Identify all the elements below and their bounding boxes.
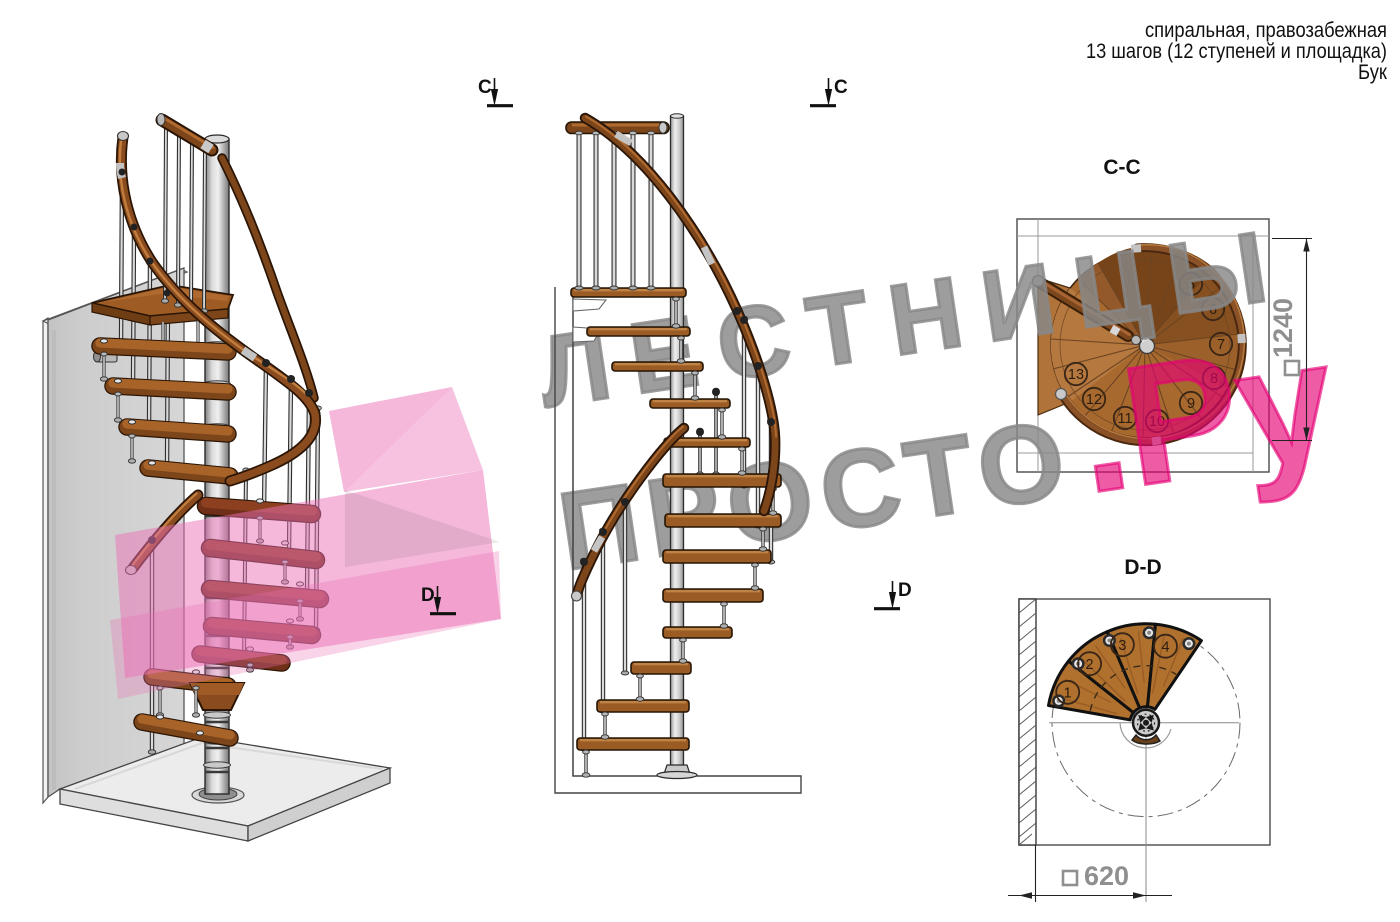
svg-text:C: C [478, 77, 492, 98]
svg-text:D: D [421, 585, 435, 606]
svg-text:620: 620 [1084, 861, 1129, 891]
svg-text:D: D [898, 580, 912, 601]
svg-text:1: 1 [1064, 686, 1072, 702]
svg-text:Бук: Бук [1358, 61, 1388, 84]
svg-text:2: 2 [1086, 657, 1094, 673]
svg-text:C: C [834, 77, 848, 98]
svg-text:3: 3 [1118, 638, 1126, 654]
svg-text:D-D: D-D [1124, 556, 1161, 579]
svg-text:4: 4 [1161, 639, 1169, 655]
svg-text:спиральная, правозабежная: спиральная, правозабежная [1145, 19, 1387, 42]
svg-text:1240: 1240 [1268, 298, 1298, 358]
svg-text:13 шагов (12 ступеней и площад: 13 шагов (12 ступеней и площадка) [1086, 40, 1387, 63]
svg-text:C-C: C-C [1103, 156, 1140, 179]
